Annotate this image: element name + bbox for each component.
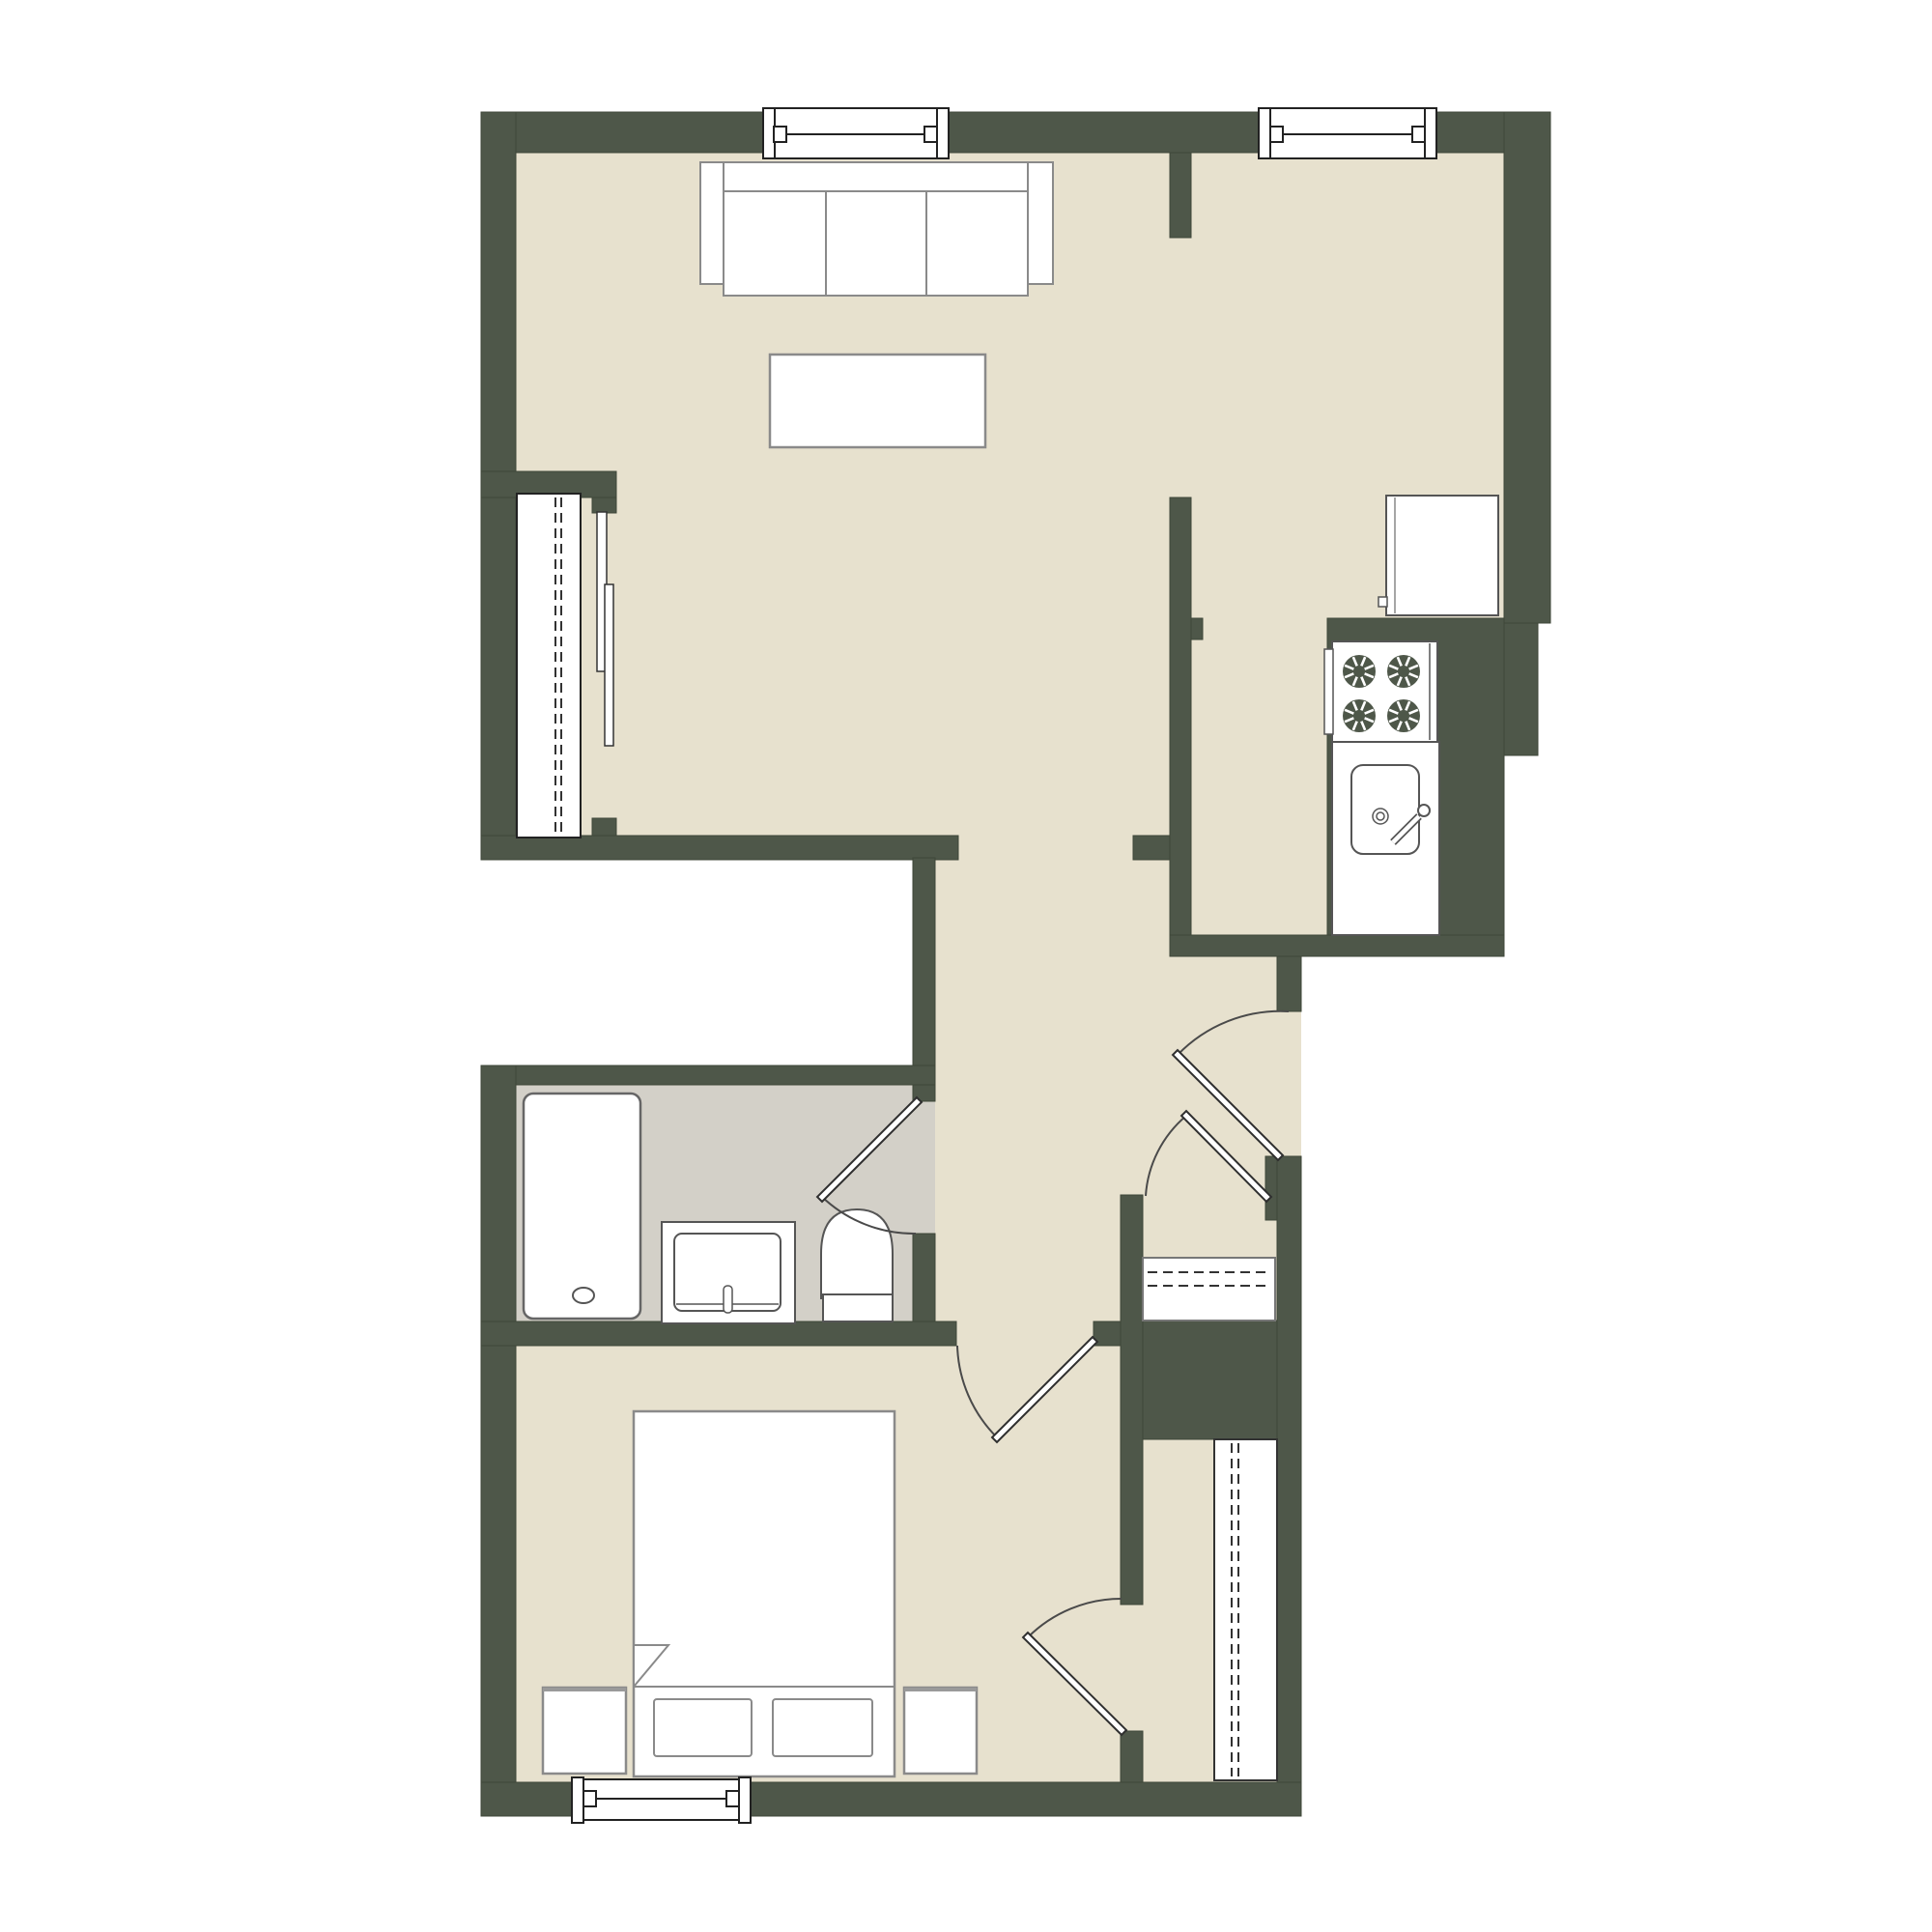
coffee-table bbox=[770, 355, 985, 447]
window-top-right-cap-left bbox=[1259, 108, 1270, 158]
wall-kitchen-bottom bbox=[1170, 935, 1504, 956]
wall-left-lower bbox=[481, 1065, 516, 1816]
window-left-sliding-frame bbox=[517, 494, 581, 838]
bathtub bbox=[524, 1094, 640, 1319]
floor-plan bbox=[0, 0, 1932, 1932]
mid-hall-floor bbox=[935, 935, 1301, 1195]
bedroom-door-threshold bbox=[956, 1321, 1094, 1346]
bathtub-drain bbox=[573, 1288, 594, 1303]
stove-burner-4-hub bbox=[1398, 710, 1409, 722]
wall-kitchen-divider bbox=[1170, 497, 1191, 956]
oven-handle bbox=[1324, 649, 1333, 734]
wall-central bbox=[1121, 1195, 1143, 1605]
window-top-right-cap-right bbox=[1425, 108, 1436, 158]
wall-bedroom-top bbox=[481, 1321, 956, 1346]
sofa-seat-3 bbox=[926, 191, 1028, 296]
window-right-sliding-frame bbox=[1214, 1439, 1277, 1780]
wall-right-lower bbox=[1277, 1156, 1301, 1816]
toilet-tank bbox=[823, 1294, 893, 1321]
sofa-armrest-right bbox=[1028, 162, 1053, 284]
wall-entry-jamb-upper bbox=[1277, 956, 1301, 1011]
window-top-left-stop-right bbox=[924, 127, 937, 142]
bed-pillow-right bbox=[773, 1699, 872, 1756]
bath-sink-faucet bbox=[724, 1286, 732, 1313]
wall-right-lower-lip bbox=[1265, 1156, 1277, 1220]
stove-burner-1 bbox=[1343, 655, 1376, 688]
window-top-right-stop-right bbox=[1412, 127, 1425, 142]
wall-kitchen-divider-lip bbox=[1191, 618, 1203, 639]
window-top-right-stop-left bbox=[1270, 127, 1283, 142]
toilet-bowl bbox=[821, 1209, 893, 1298]
window-bottom-cap-left bbox=[572, 1777, 583, 1823]
window-left-slider-panel-2 bbox=[605, 584, 613, 746]
stove-burner-3-hub bbox=[1353, 710, 1365, 722]
wall-living-bottom-jut bbox=[1133, 836, 1170, 860]
sofa-seat-2 bbox=[826, 191, 926, 296]
window-bottom-stop-right bbox=[726, 1791, 739, 1806]
bed-pillow-left bbox=[654, 1699, 752, 1756]
nightstand-left bbox=[543, 1688, 626, 1774]
wardrobe-closet-box bbox=[1143, 1258, 1275, 1321]
fridge bbox=[1386, 496, 1498, 615]
window-top-left-stop-left bbox=[774, 127, 786, 142]
wall-window-stub-upper bbox=[592, 497, 616, 513]
floor-plan-canvas bbox=[0, 0, 1932, 1932]
window-top-left-cap-right bbox=[937, 108, 949, 158]
sofa-back bbox=[724, 162, 1028, 191]
wall-bathroom-top bbox=[481, 1065, 935, 1085]
bathroom-door-threshold bbox=[913, 1098, 935, 1234]
nightstand-right bbox=[904, 1688, 977, 1774]
sofa-seat-1 bbox=[724, 191, 826, 296]
window-bottom-stop-left bbox=[583, 1791, 596, 1806]
wall-right-upper bbox=[1504, 112, 1550, 623]
wall-hall-west-lower bbox=[913, 1234, 935, 1323]
wall-central-stub bbox=[1121, 1731, 1143, 1782]
stove-burner-1-hub bbox=[1353, 666, 1365, 677]
stove-burner-4 bbox=[1387, 699, 1420, 732]
stove-burner-3 bbox=[1343, 699, 1376, 732]
wall-living-bottom bbox=[481, 836, 958, 860]
window-bottom-cap-right bbox=[739, 1777, 751, 1823]
stove-burner-2-hub bbox=[1398, 666, 1409, 677]
sofa-armrest-left bbox=[700, 162, 724, 284]
wall-window-stub-lower bbox=[592, 818, 616, 838]
wall-structural-block bbox=[1143, 1321, 1277, 1439]
fridge-handle bbox=[1378, 597, 1387, 607]
wall-top-center-stub bbox=[1170, 153, 1191, 238]
stove-burner-2 bbox=[1387, 655, 1420, 688]
wall-hall-west-upper bbox=[913, 858, 935, 1101]
kitchen-faucet-knob bbox=[1418, 805, 1430, 816]
